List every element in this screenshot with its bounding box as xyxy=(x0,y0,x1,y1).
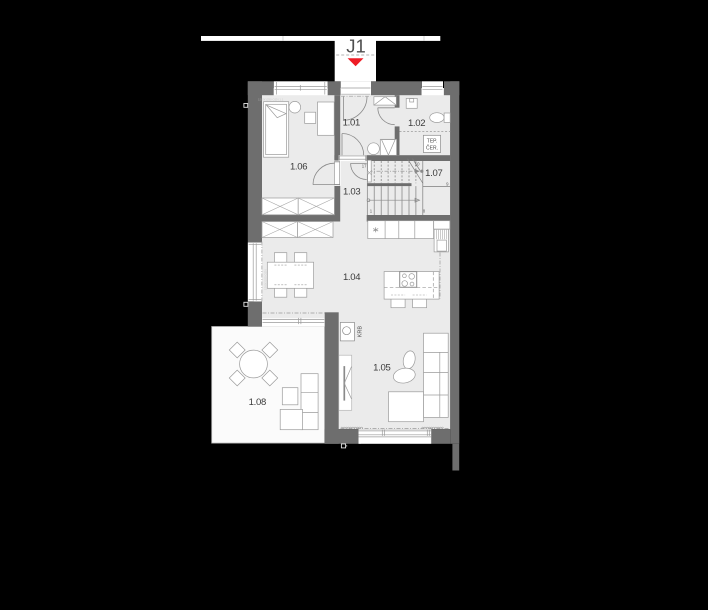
svg-text:1.06: 1.06 xyxy=(290,161,307,172)
svg-text:1.07: 1.07 xyxy=(425,168,442,179)
svg-text:KRB: KRB xyxy=(358,326,364,338)
svg-text:1.08: 1.08 xyxy=(249,397,266,408)
svg-text:1500/1250 OZN 1.1: 1500/1250 OZN 1.1 xyxy=(258,97,284,101)
svg-text:1.05: 1.05 xyxy=(373,362,390,373)
svg-text:TEP.: TEP. xyxy=(427,138,437,144)
svg-text:17: 17 xyxy=(362,164,367,169)
svg-text:1.04: 1.04 xyxy=(343,272,360,283)
svg-text:1500/2250 OZN: 1500/2250 OZN xyxy=(263,269,267,290)
svg-text:1.03: 1.03 xyxy=(343,187,360,198)
svg-text:1.02: 1.02 xyxy=(408,118,425,129)
svg-text:J1: J1 xyxy=(346,36,366,57)
svg-text:10: 10 xyxy=(415,162,420,167)
svg-text:1.01: 1.01 xyxy=(343,118,360,129)
svg-text:ČER.: ČER. xyxy=(426,144,438,151)
